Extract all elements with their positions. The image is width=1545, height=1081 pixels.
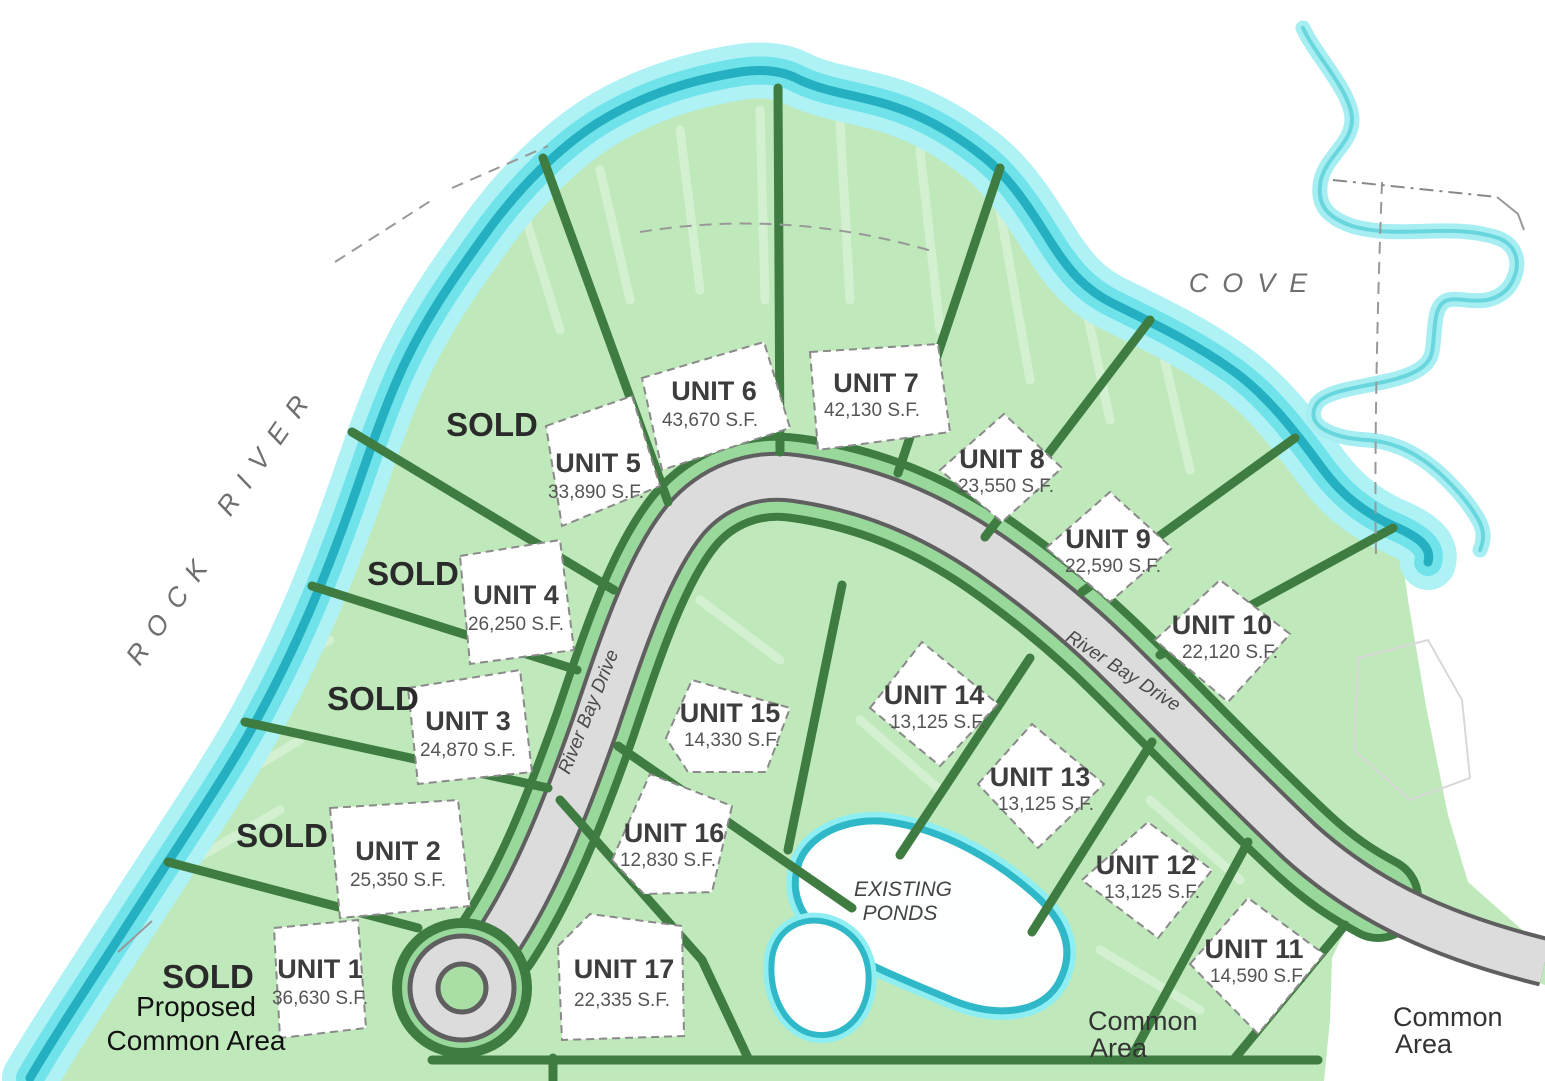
common-area-left-line1: Common — [1088, 1006, 1198, 1036]
unit-11-name: UNIT 11 — [1204, 934, 1303, 964]
unit-8-sf: 23,550 S.F. — [958, 476, 1054, 497]
unit-17-name: UNIT 17 — [574, 954, 675, 984]
unit-17-sf: 22,335 S.F. — [574, 990, 670, 1011]
rock-river-label-word2: RIVER — [211, 379, 323, 521]
sold-label-unit2: SOLD — [236, 817, 328, 854]
unit-15-name: UNIT 15 — [680, 698, 781, 728]
unit-9-sf: 22,590 S.F. — [1065, 556, 1161, 577]
unit-14-sf: 13,125 S.F. — [890, 712, 986, 733]
unit-13-sf: 13,125 S.F. — [998, 794, 1094, 815]
cove-label: COVE — [1189, 268, 1322, 298]
unit-16-sf: 12,830 S.F. — [620, 850, 716, 871]
unit-4-lot-label: UNIT 4 26,250 S.F. — [460, 540, 574, 664]
unit-5-name: UNIT 5 — [555, 448, 641, 478]
common-area-left-line2: Area — [1090, 1033, 1148, 1063]
sold-label-unit5: SOLD — [446, 406, 538, 443]
unit-4-sf: 26,250 S.F. — [468, 614, 564, 635]
unit-16-name: UNIT 16 — [624, 818, 725, 848]
sold-label-unit3: SOLD — [327, 680, 419, 717]
unit-6-name: UNIT 6 — [671, 376, 757, 406]
unit-9-name: UNIT 9 — [1065, 524, 1151, 554]
unit-17-lot-label: UNIT 17 22,335 S.F. — [558, 914, 684, 1040]
common-area-right-label: Common Area — [1393, 1002, 1503, 1059]
unit-2-lot-label: UNIT 2 25,350 S.F. — [330, 800, 470, 918]
sold-label-unit1: SOLD — [162, 958, 254, 995]
unit-1-lot-label: UNIT 1 36,630 S.F. — [272, 920, 368, 1038]
plat-map-svg: UNIT 1 36,630 S.F. UNIT 2 25,350 S.F. UN… — [0, 0, 1545, 1081]
common-area-right-line2: Area — [1395, 1029, 1453, 1059]
unit-7-sf: 42,130 S.F. — [824, 400, 920, 421]
rock-river-label-word1: ROCK — [120, 543, 221, 670]
unit-3-name: UNIT 3 — [425, 706, 511, 736]
plat-map: UNIT 1 36,630 S.F. UNIT 2 25,350 S.F. UN… — [0, 0, 1545, 1081]
unit-5-sf: 33,890 S.F. — [548, 482, 644, 503]
proposed-line2: Common Area — [107, 1025, 286, 1056]
unit-11-sf: 14,590 S.F. — [1210, 966, 1306, 987]
unit-12-sf: 13,125 S.F. — [1104, 882, 1200, 903]
existing-ponds-line1: EXISTING — [854, 878, 952, 901]
unit-14-name: UNIT 14 — [884, 680, 985, 710]
unit-1-sf: 36,630 S.F. — [272, 988, 368, 1009]
small-pond — [771, 921, 868, 1035]
common-area-right-line1: Common — [1393, 1002, 1503, 1032]
unit-6-sf: 43,670 S.F. — [662, 410, 758, 431]
unit-8-name: UNIT 8 — [959, 444, 1045, 474]
proposed-line1: Proposed — [136, 991, 256, 1022]
unit-3-sf: 24,870 S.F. — [420, 740, 516, 761]
unit-10-name: UNIT 10 — [1172, 610, 1273, 640]
unit-12-name: UNIT 12 — [1096, 850, 1197, 880]
unit-2-name: UNIT 2 — [355, 836, 441, 866]
existing-ponds-label: EXISTING PONDS — [854, 878, 952, 925]
unit-10-sf: 22,120 S.F. — [1182, 642, 1278, 663]
existing-ponds-line2: PONDS — [863, 902, 938, 925]
cul-de-sac — [392, 918, 532, 1058]
unit-15-sf: 14,330 S.F. — [684, 730, 780, 751]
sold-label-unit4: SOLD — [367, 555, 459, 592]
unit-4-name: UNIT 4 — [473, 580, 559, 610]
unit-13-name: UNIT 13 — [990, 762, 1091, 792]
unit-1-name: UNIT 1 — [277, 954, 363, 984]
unit-2-sf: 25,350 S.F. — [350, 870, 446, 891]
unit-7-name: UNIT 7 — [833, 368, 919, 398]
unit-7-lot-label: UNIT 7 42,130 S.F. — [810, 344, 950, 450]
unit-3-lot-label: UNIT 3 24,870 S.F. — [408, 670, 532, 784]
